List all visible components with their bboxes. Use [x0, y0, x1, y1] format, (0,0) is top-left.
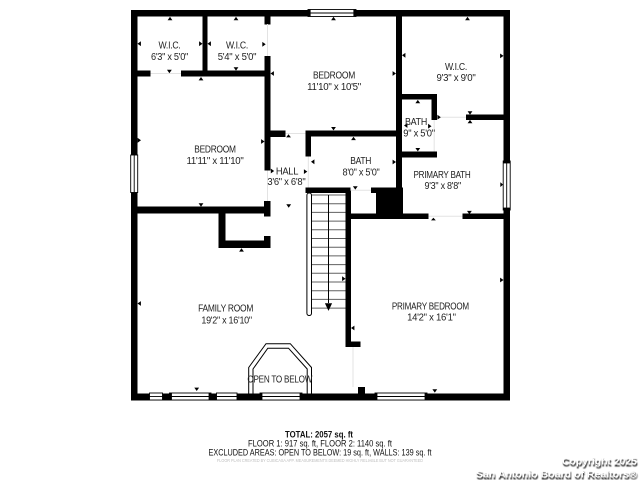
svg-text:PRIMARY BEDROOM: PRIMARY BEDROOM: [392, 301, 469, 312]
svg-text:11'10" x 10'5": 11'10" x 10'5": [307, 82, 362, 93]
svg-text:San Antonio Board of Realtors®: San Antonio Board of Realtors®: [476, 469, 637, 480]
svg-text:BEDROOM: BEDROOM: [313, 71, 355, 82]
svg-text:19'2" x 16'10": 19'2" x 16'10": [201, 315, 252, 326]
svg-text:9'3" x 9'0": 9'3" x 9'0": [437, 73, 477, 84]
svg-text:3'6" x 6'8": 3'6" x 6'8": [267, 177, 306, 188]
svg-text:11'11" x 11'10": 11'11" x 11'10": [187, 156, 245, 167]
svg-text:HALL: HALL: [276, 166, 299, 177]
svg-text:Copyright 2025: Copyright 2025: [562, 456, 637, 468]
svg-text:FAMILY ROOM: FAMILY ROOM: [198, 304, 253, 315]
svg-text:8'0" x 5'0": 8'0" x 5'0": [343, 168, 381, 179]
svg-text:5'4" x 5'0": 5'4" x 5'0": [218, 52, 257, 63]
svg-text:9" x 5'0": 9" x 5'0": [403, 128, 435, 139]
svg-text:W.I.C.: W.I.C.: [159, 41, 181, 52]
svg-text:OPEN TO BELOW: OPEN TO BELOW: [247, 374, 313, 385]
svg-text:EXCLUDED AREAS: OPEN TO BELOW:: EXCLUDED AREAS: OPEN TO BELOW: 19 sq. ft…: [209, 448, 432, 458]
svg-text:FLOOR PLAN CREATED BY CUBICASA: FLOOR PLAN CREATED BY CUBICASA APP. MEAS…: [217, 458, 424, 463]
svg-text:BATH: BATH: [405, 117, 427, 128]
svg-text:PRIMARY BATH: PRIMARY BATH: [414, 170, 471, 181]
svg-text:BEDROOM: BEDROOM: [194, 144, 236, 155]
svg-text:6'3" x 5'0": 6'3" x 5'0": [151, 52, 189, 63]
svg-text:W.I.C.: W.I.C.: [226, 41, 248, 52]
svg-text:14'2" x 16'1": 14'2" x 16'1": [407, 312, 456, 323]
svg-text:BATH: BATH: [350, 156, 371, 167]
svg-text:W.I.C.: W.I.C.: [445, 62, 467, 73]
svg-text:9'3" x 8'8": 9'3" x 8'8": [424, 181, 461, 192]
